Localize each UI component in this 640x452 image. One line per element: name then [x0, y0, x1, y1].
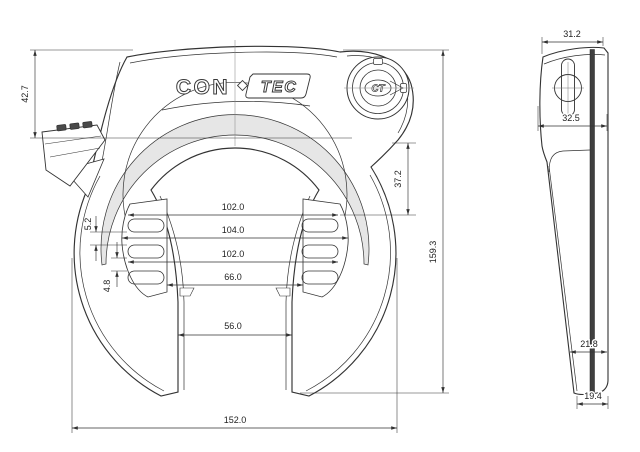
dim-label: 42.7 — [20, 85, 30, 103]
dim-label: 21.8 — [580, 339, 598, 349]
dim-label: 159.3 — [428, 241, 438, 264]
dim-label: 102.0 — [222, 202, 245, 212]
front-view: CT CON TEC — [42, 46, 413, 396]
brand-logo-tec: TEC — [261, 79, 298, 96]
dim-label: 104.0 — [222, 225, 245, 235]
dim-label: 4.8 — [102, 280, 112, 293]
dim-label: 32.5 — [562, 113, 580, 123]
emblem-label: CT — [371, 84, 385, 95]
dim-label: 31.2 — [563, 29, 581, 39]
dim-label: 66.0 — [224, 272, 242, 282]
dim-label: 19.4 — [584, 391, 602, 401]
side-view — [540, 47, 608, 394]
strap-right-notch — [276, 288, 290, 296]
frame-lock-drawing: CT CON TEC 42.7 — [0, 0, 640, 452]
dim-56: 56.0 — [178, 321, 292, 335]
dim-66: 66.0 — [167, 272, 303, 285]
dim-label: 5.2 — [83, 218, 93, 231]
dim-label: 37.2 — [393, 170, 403, 188]
lever-grip-tooth — [70, 123, 80, 130]
dim-label: 152.0 — [224, 415, 247, 425]
strap-left-notch — [180, 288, 194, 296]
technical-drawing-page: CT CON TEC 42.7 — [0, 0, 640, 452]
dim-label: 102.0 — [222, 249, 245, 259]
lever-grip-tooth — [57, 124, 67, 131]
brand-logo-con: CON — [176, 76, 230, 99]
dim-label: 56.0 — [224, 321, 242, 331]
lever-grip-tooth — [83, 121, 93, 128]
cylinder-detent-top — [374, 59, 383, 65]
